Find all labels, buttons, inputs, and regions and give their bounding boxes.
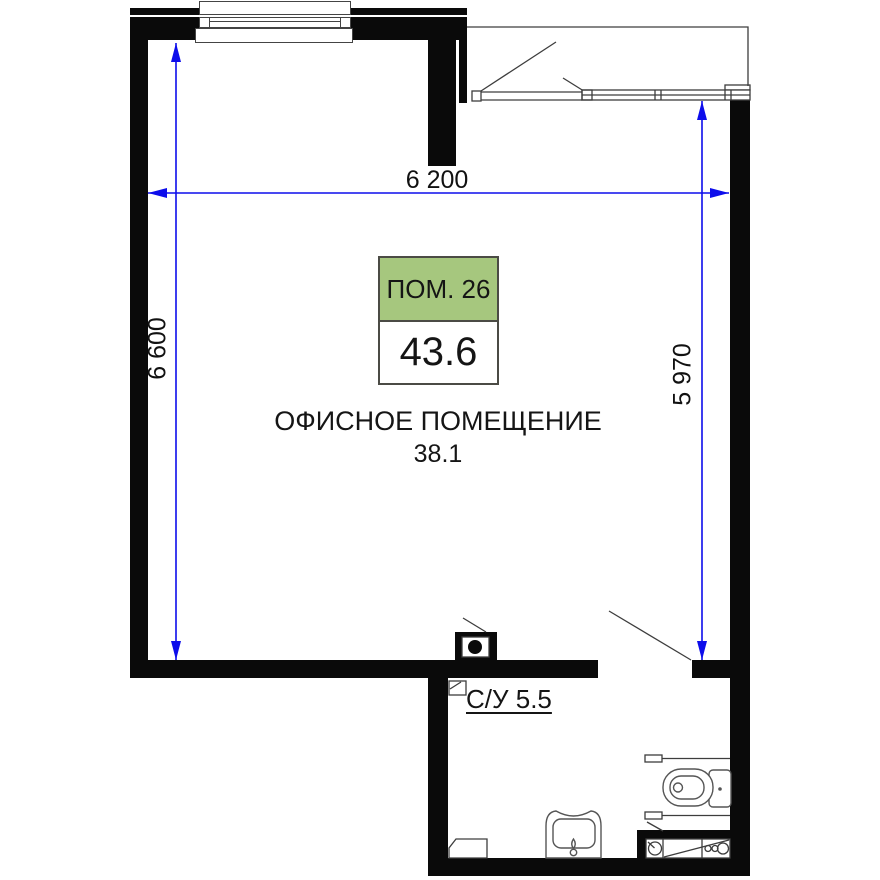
- unit-area: 43.6: [380, 322, 497, 383]
- rail-top: [645, 755, 730, 762]
- vent-icon: [462, 618, 489, 657]
- dimension-line-right: [697, 101, 707, 660]
- rail-bottom: [645, 812, 730, 819]
- floor-plan: 6 200 6 600 5 970 ПОМ. 26 43.6 ОФИСНОЕ П…: [0, 0, 880, 880]
- washbasin-fixture: [546, 811, 601, 858]
- dimension-line-left: [171, 43, 181, 660]
- bathroom-label: С/У 5.5: [466, 684, 552, 715]
- door-jamb: [472, 91, 481, 101]
- unit-number: ПОМ. 26: [380, 258, 497, 322]
- open-door-leaf: [449, 839, 487, 858]
- unit-label-box: ПОМ. 26 43.6: [378, 256, 499, 385]
- bathroom-door-swing: [609, 611, 691, 660]
- dimension-left-label: 6 600: [144, 289, 173, 409]
- door-swing-line: [481, 42, 556, 91]
- dimension-right-label: 5 970: [669, 315, 698, 435]
- room-name-label: ОФИСНОЕ ПОМЕЩЕНИЕ: [238, 406, 638, 437]
- exterior-outline: [467, 27, 750, 90]
- dimension-top-label: 6 200: [377, 166, 497, 195]
- room-area-label: 38.1: [338, 440, 538, 469]
- counter-unit: [646, 822, 730, 858]
- glazed-partition: [582, 90, 750, 100]
- entry-door: [472, 42, 587, 101]
- door-corner-symbol: [449, 681, 466, 695]
- toilet-fixture: [663, 769, 731, 807]
